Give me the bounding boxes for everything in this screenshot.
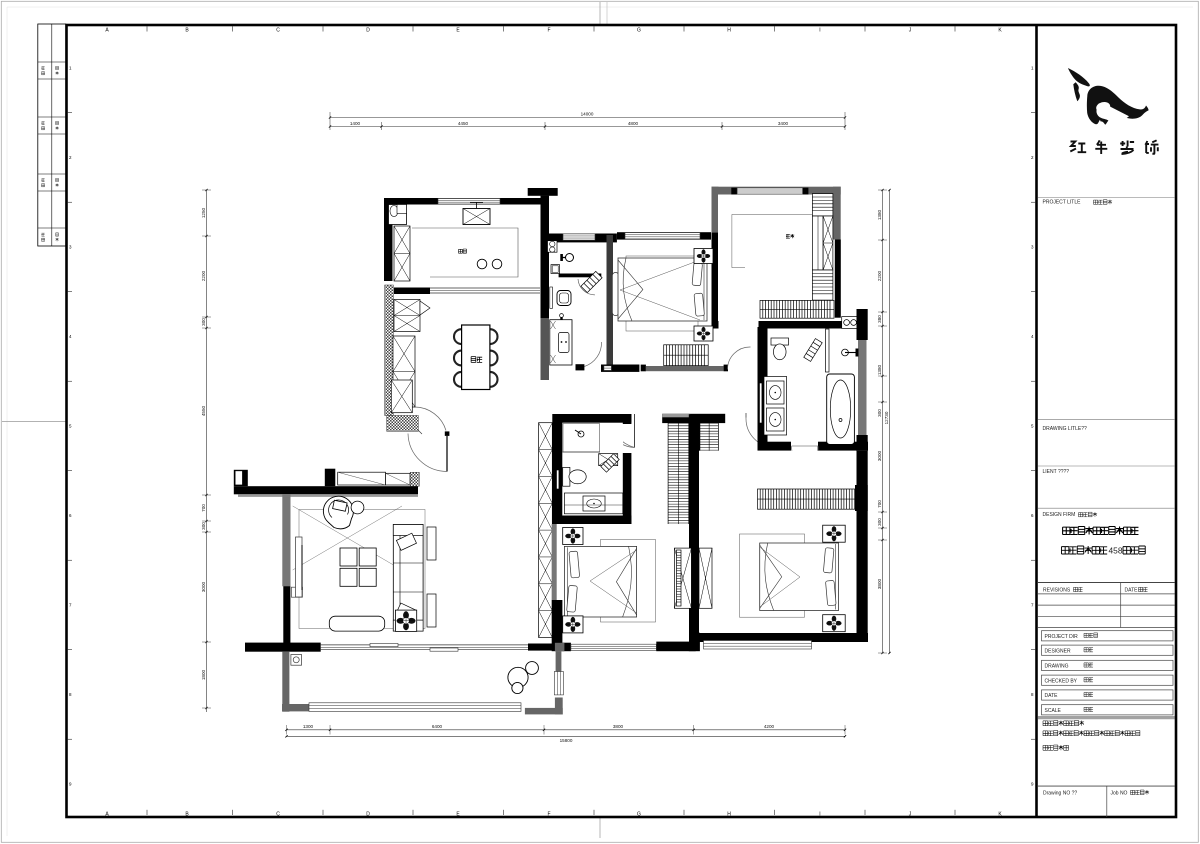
svg-text:3800: 3800 bbox=[877, 578, 882, 589]
svg-text:A: A bbox=[105, 28, 109, 34]
svg-text:3: 3 bbox=[1031, 245, 1034, 250]
svg-text:6: 6 bbox=[1031, 513, 1034, 518]
svg-text:3: 3 bbox=[69, 245, 72, 250]
svg-text:DATE: DATE bbox=[1125, 588, 1139, 594]
svg-text:DESIGNER: DESIGNER bbox=[1045, 648, 1072, 654]
svg-text:PROJECT DIR: PROJECT DIR bbox=[1045, 634, 1079, 640]
svg-text:700: 700 bbox=[877, 500, 882, 508]
svg-text:DRAWING: DRAWING bbox=[1045, 664, 1069, 670]
svg-text:DESIGN FIRM: DESIGN FIRM bbox=[1043, 512, 1076, 518]
svg-text:6400: 6400 bbox=[432, 724, 443, 729]
svg-text:C: C bbox=[276, 811, 280, 817]
svg-text:5: 5 bbox=[1031, 424, 1034, 429]
svg-text:Drawing NO ??: Drawing NO ?? bbox=[1043, 791, 1077, 797]
svg-text:458: 458 bbox=[1109, 545, 1123, 555]
svg-text:F: F bbox=[547, 811, 550, 817]
svg-text:1400: 1400 bbox=[350, 121, 361, 126]
svg-text:300: 300 bbox=[201, 318, 206, 326]
svg-text:1800: 1800 bbox=[201, 669, 206, 680]
svg-text:PROJECT LITLE: PROJECT LITLE bbox=[1043, 200, 1082, 206]
svg-text:9: 9 bbox=[1031, 782, 1034, 787]
svg-text:3000: 3000 bbox=[877, 450, 882, 461]
svg-text:D: D bbox=[366, 811, 370, 817]
svg-text:D: D bbox=[366, 28, 370, 34]
svg-text:H: H bbox=[727, 811, 731, 817]
svg-text:J: J bbox=[909, 28, 912, 34]
svg-text:1250: 1250 bbox=[201, 207, 206, 218]
svg-text:DATE: DATE bbox=[1045, 693, 1059, 699]
svg-text:CHECKED BY: CHECKED BY bbox=[1045, 678, 1078, 684]
svg-text:2200: 2200 bbox=[201, 270, 206, 281]
svg-text:1300: 1300 bbox=[303, 724, 314, 729]
svg-text:12730: 12730 bbox=[884, 411, 889, 424]
svg-text:4200: 4200 bbox=[764, 724, 775, 729]
svg-text:1: 1 bbox=[69, 66, 72, 71]
svg-text:H: H bbox=[727, 28, 731, 34]
svg-text:300: 300 bbox=[877, 518, 882, 526]
svg-text:G: G bbox=[637, 28, 641, 34]
svg-text:SCALE: SCALE bbox=[1045, 708, 1062, 714]
svg-text:B: B bbox=[185, 28, 189, 34]
svg-text:LIENT ????: LIENT ???? bbox=[1043, 469, 1070, 475]
svg-text:1380: 1380 bbox=[877, 364, 882, 375]
svg-text:4: 4 bbox=[69, 334, 72, 339]
svg-text:3800: 3800 bbox=[613, 724, 624, 729]
svg-text:9: 9 bbox=[69, 782, 72, 787]
svg-text:REVISIONS: REVISIONS bbox=[1043, 588, 1071, 594]
svg-text:4: 4 bbox=[1031, 334, 1034, 339]
svg-text:700: 700 bbox=[201, 504, 206, 512]
svg-text:7: 7 bbox=[1031, 603, 1034, 608]
svg-text:300: 300 bbox=[201, 522, 206, 530]
svg-text:14000: 14000 bbox=[581, 112, 594, 117]
svg-text:300: 300 bbox=[877, 409, 882, 417]
svg-text:2: 2 bbox=[1031, 155, 1034, 160]
svg-text:2200: 2200 bbox=[877, 270, 882, 281]
svg-text:C: C bbox=[276, 28, 280, 34]
svg-text:7: 7 bbox=[69, 603, 72, 608]
svg-text:4550: 4550 bbox=[201, 405, 206, 416]
svg-text:I: I bbox=[819, 811, 820, 817]
svg-text:K: K bbox=[998, 28, 1002, 34]
svg-text:2: 2 bbox=[69, 155, 72, 160]
svg-text:Job NO: Job NO bbox=[1111, 791, 1128, 797]
svg-text:5: 5 bbox=[69, 424, 72, 429]
svg-text:F: F bbox=[547, 28, 550, 34]
svg-text:4450: 4450 bbox=[458, 121, 469, 126]
svg-text:3000: 3000 bbox=[201, 581, 206, 592]
svg-text:8: 8 bbox=[1031, 692, 1034, 697]
svg-text:8: 8 bbox=[69, 692, 72, 697]
svg-text:6: 6 bbox=[69, 513, 72, 518]
svg-text:380: 380 bbox=[877, 315, 882, 323]
svg-text:15800: 15800 bbox=[560, 738, 573, 743]
svg-text:1: 1 bbox=[1031, 66, 1034, 71]
svg-text:DRAWING LITLE??: DRAWING LITLE?? bbox=[1043, 426, 1087, 432]
svg-text:E: E bbox=[456, 28, 460, 34]
svg-text:4800: 4800 bbox=[628, 121, 639, 126]
svg-text:G: G bbox=[637, 811, 641, 817]
svg-text:I: I bbox=[819, 28, 820, 34]
svg-text:3400: 3400 bbox=[778, 121, 789, 126]
svg-text:1380: 1380 bbox=[877, 209, 882, 220]
